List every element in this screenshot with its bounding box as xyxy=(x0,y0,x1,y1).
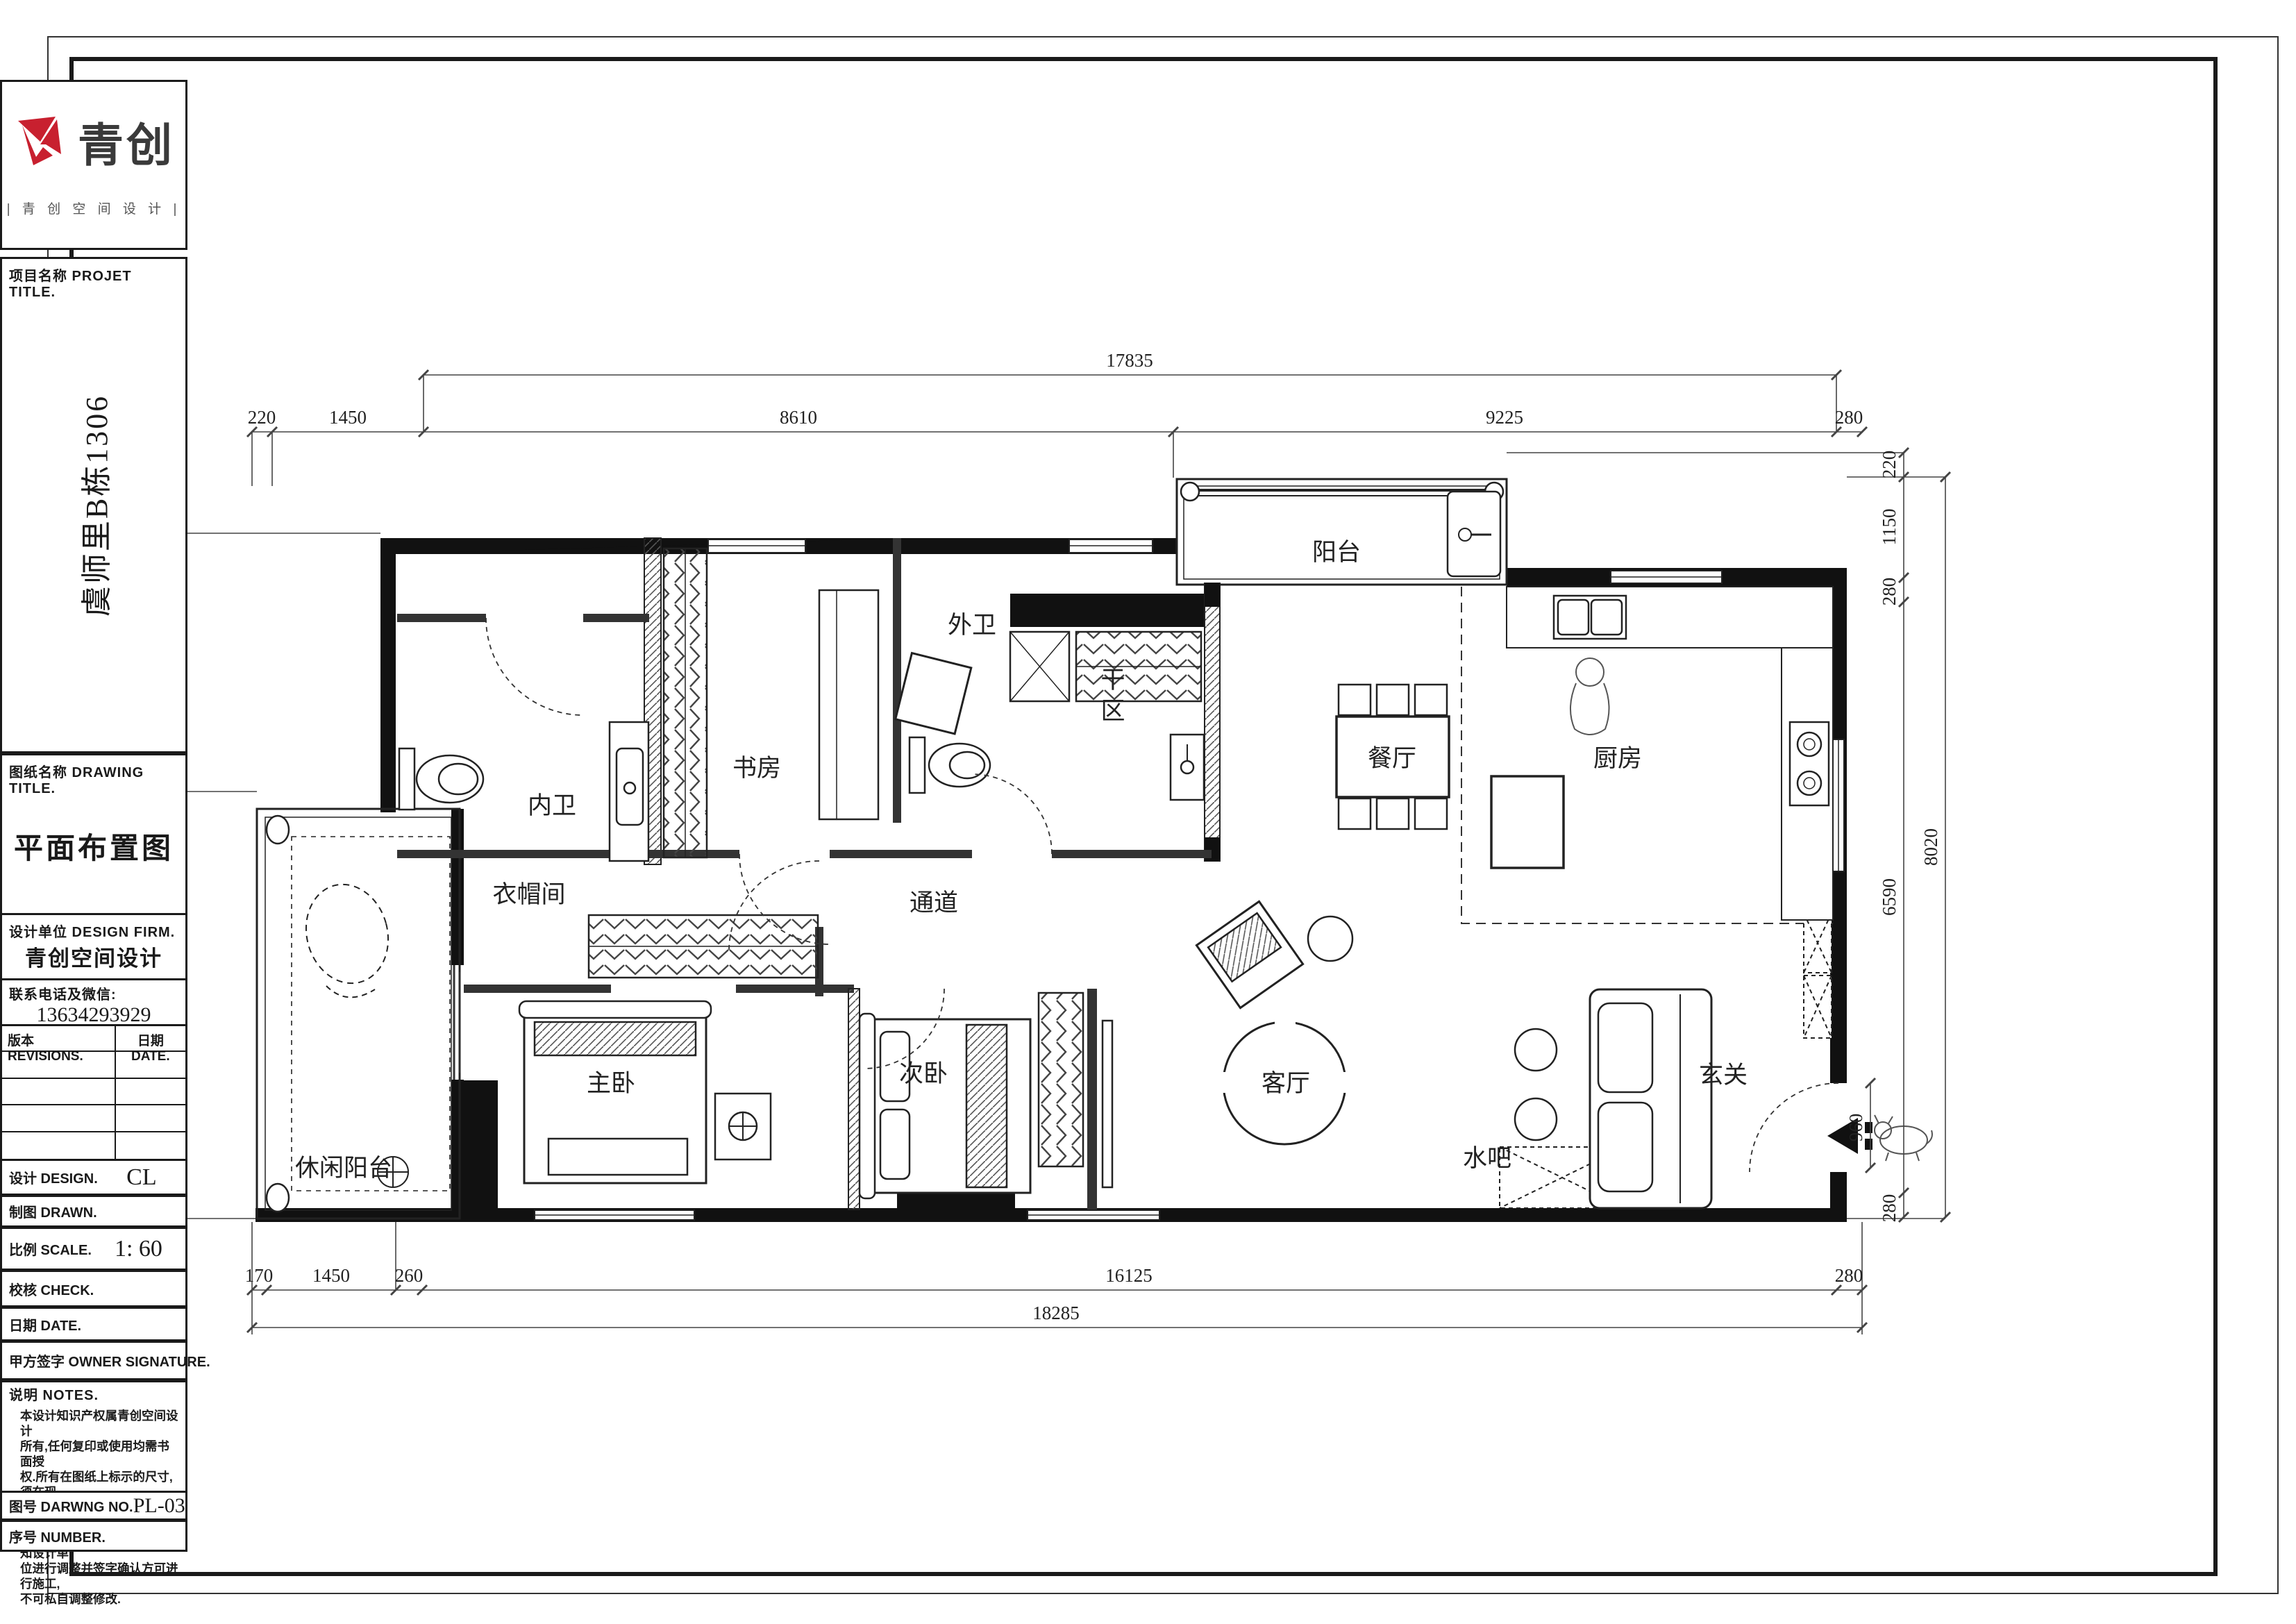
owner-signature-field: 甲方签字 OWNER SIGNATURE. xyxy=(0,1341,187,1380)
design-value: CL xyxy=(98,1164,185,1191)
dim-top-280: 280 xyxy=(1835,407,1863,428)
living-set xyxy=(1196,901,1352,1144)
kitchen-counters xyxy=(1491,587,1833,920)
check-field: 校核 CHECK. xyxy=(0,1271,187,1307)
dim-right-6590: 6590 xyxy=(1879,878,1900,916)
revision-row-cell xyxy=(116,1105,185,1132)
scale-field: 比例 SCALE. 1: 60 xyxy=(0,1228,187,1271)
dim-entry-960: 960 xyxy=(1845,1114,1866,1142)
drawn-label: 制图 DRAWN. xyxy=(2,1201,97,1221)
notes-line: 所有,任何复印或使用均需书面授 xyxy=(20,1439,181,1469)
project-title-box: 项目名称 PROJET TITLE. 虞师里B栋1306 xyxy=(0,257,187,753)
design-firm-label: 设计单位 DESIGN FIRM. xyxy=(2,915,185,941)
number-label: 序号 NUMBER. xyxy=(2,1526,106,1546)
drawn-field: 制图 DRAWN. xyxy=(0,1196,187,1228)
number-field: 序号 NUMBER. xyxy=(0,1521,187,1552)
revision-row-cell xyxy=(116,1079,185,1106)
washer-box xyxy=(1010,632,1069,701)
design-firm-name: 青创空间设计 xyxy=(2,941,185,972)
project-name: 虞师里B栋1306 xyxy=(72,394,116,616)
room-label-water-bar: 水吧 xyxy=(1463,1145,1511,1172)
revisions-table: 版本 REVISIONS. 日期 DATE. xyxy=(0,1026,187,1161)
second-bed xyxy=(860,1014,1030,1198)
room-label-leisure-balcony: 休闲阳台 xyxy=(295,1155,392,1182)
room-label-balcony: 阳台 xyxy=(1312,539,1361,566)
room-label-living-room: 客厅 xyxy=(1262,1070,1310,1097)
drawing-no-field: 图号 DARWNG NO. PL-03 xyxy=(0,1493,187,1521)
dim-bot-170: 170 xyxy=(245,1265,274,1286)
master-bed xyxy=(519,1001,771,1183)
revisions-label: 版本 REVISIONS. xyxy=(2,1026,116,1052)
room-label-cloakroom: 衣帽间 xyxy=(492,881,565,908)
revision-row-cell xyxy=(2,1132,116,1160)
dim-bottom-total: 18285 xyxy=(1032,1303,1080,1323)
design-field: 设计 DESIGN. CL xyxy=(0,1161,187,1196)
notes-line: 不可私自调整修改. xyxy=(20,1591,181,1607)
drawing-title-label: 图纸名称 DRAWING TITLE. xyxy=(2,755,185,797)
dim-top-1450: 1450 xyxy=(329,407,367,428)
drawing-no-label: 图号 DARWNG NO. xyxy=(2,1496,133,1516)
contact-phone: 13634293929 xyxy=(2,1003,185,1027)
drawing-no-value: PL-03 xyxy=(133,1494,185,1518)
room-label-second-bedroom: 次卧 xyxy=(899,1060,948,1087)
design-label: 设计 DESIGN. xyxy=(2,1167,98,1187)
design-firm-box: 设计单位 DESIGN FIRM. 青创空间设计 xyxy=(0,915,187,980)
room-label-entry: 玄关 xyxy=(1699,1062,1748,1089)
dim-right-280a: 280 xyxy=(1879,578,1900,606)
room-label-dry-area: 干区 xyxy=(1098,667,1125,729)
dim-bot-280: 280 xyxy=(1835,1265,1863,1286)
project-title-label: 项目名称 PROJET TITLE. xyxy=(2,259,185,301)
person-sketch xyxy=(1570,658,1609,735)
dim-top-8610: 8610 xyxy=(780,407,817,428)
dim-top-total: 17835 xyxy=(1106,350,1153,371)
floor-plan: 阳台 外卫 干区 内卫 书房 餐厅 厨房 衣帽间 通道 主卧 休闲阳台 次卧 客… xyxy=(0,0,2296,1624)
logo-box: 青创 | 青 创 空 间 设 计 | xyxy=(0,80,187,250)
dim-right-280b: 280 xyxy=(1879,1194,1900,1223)
notes-label: 说明 NOTES. xyxy=(2,1382,185,1404)
notes-line: 本设计知识产权属青创空间设计 xyxy=(20,1408,181,1439)
brand-tagline: | 青 创 空 间 设 计 | xyxy=(2,199,185,217)
dim-top-9225: 9225 xyxy=(1486,407,1523,428)
drawing-title-box: 图纸名称 DRAWING TITLE. 平面布置图 xyxy=(0,753,187,915)
brand-logo-icon xyxy=(12,114,68,169)
revision-row-cell xyxy=(116,1052,185,1079)
scale-value: 1: 60 xyxy=(92,1236,185,1262)
dim-right-220: 220 xyxy=(1879,451,1900,479)
toilet-guest xyxy=(910,737,990,793)
toilet-master xyxy=(399,748,483,810)
dim-bot-16125: 16125 xyxy=(1105,1265,1153,1286)
dim-bot-1450: 1450 xyxy=(312,1265,350,1286)
brand-name: 青创 xyxy=(78,108,175,175)
revision-row-cell xyxy=(2,1052,116,1079)
dim-bot-260: 260 xyxy=(395,1265,424,1286)
owner-signature-label: 甲方签字 OWNER SIGNATURE. xyxy=(2,1350,210,1371)
room-label-master-bedroom: 主卧 xyxy=(587,1070,635,1097)
room-label-dining: 餐厅 xyxy=(1368,745,1416,772)
revision-row-cell xyxy=(116,1132,185,1160)
contact-box: 联系电话及微信: 13634293929 xyxy=(0,980,187,1026)
revisions-date-label: 日期 DATE. xyxy=(116,1026,185,1052)
room-label-kitchen: 厨房 xyxy=(1593,745,1642,772)
room-label-master-bath: 内卫 xyxy=(528,792,576,819)
check-label: 校核 CHECK. xyxy=(2,1279,94,1299)
date-field: 日期 DATE. xyxy=(0,1307,187,1341)
scale-label: 比例 SCALE. xyxy=(2,1239,92,1259)
room-label-corridor: 通道 xyxy=(910,889,958,916)
revision-row-cell xyxy=(2,1105,116,1132)
room-label-study: 书房 xyxy=(732,755,781,782)
drawing-title: 平面布置图 xyxy=(2,825,185,867)
top-balcony-structure xyxy=(1177,479,1507,585)
notes-box: 说明 NOTES. 本设计知识产权属青创空间设计 所有,任何复印或使用均需书面授… xyxy=(0,1380,187,1493)
dim-right-total: 8020 xyxy=(1920,828,1941,866)
room-label-guest-bath: 外卫 xyxy=(948,612,996,639)
dim-top-220: 220 xyxy=(248,407,276,428)
drawing-sheet: 阳台 外卫 干区 内卫 书房 餐厅 厨房 衣帽间 通道 主卧 休闲阳台 次卧 客… xyxy=(0,0,2296,1624)
dim-right-1150: 1150 xyxy=(1879,509,1900,546)
date-label: 日期 DATE. xyxy=(2,1314,81,1334)
notes-line: 位进行调整并签字确认方可进行施工, xyxy=(20,1561,181,1591)
revision-row-cell xyxy=(2,1079,116,1106)
contact-label: 联系电话及微信: xyxy=(2,980,185,1003)
